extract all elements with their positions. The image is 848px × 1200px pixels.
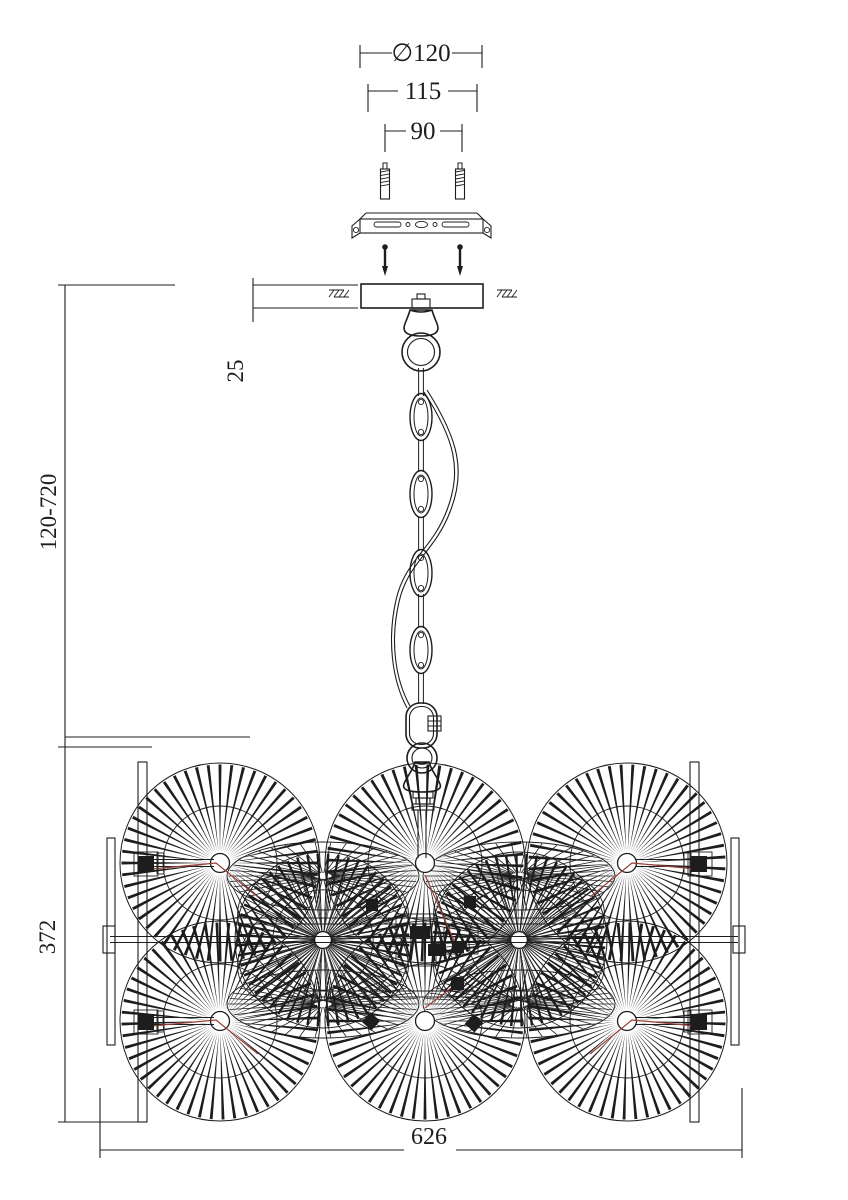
power-cord: [392, 390, 459, 708]
dim-canopy-diameter: ∅120: [360, 40, 482, 68]
crystal-disc: [325, 921, 525, 1121]
wall-hatch-right: [497, 290, 517, 297]
quick-link-sleeve: [428, 716, 441, 731]
dim-label-body-height: 372: [35, 920, 60, 955]
canopy-screw-cap: [417, 294, 425, 299]
side-disc-left-short: [107, 838, 115, 1045]
wall-anchor: [456, 163, 465, 199]
chandelier-body: [120, 163, 727, 1121]
canopy-bell: [404, 310, 438, 336]
dim-label-bracket-width: 115: [405, 78, 442, 105]
dim-label-suspension-range: 120-720: [36, 474, 61, 551]
quick-link: [406, 703, 441, 748]
canopy-nut: [412, 299, 430, 308]
dim-hole-spacing: 90: [385, 118, 462, 152]
dim-label-canopy-height: 25: [223, 360, 248, 383]
mounting-screw: [382, 244, 388, 276]
mounting-bracket: [352, 213, 491, 238]
mounting-screw: [457, 244, 463, 276]
rod-end-cap-left: [103, 926, 115, 953]
dim-body-width: 626: [100, 1088, 742, 1158]
dim-bracket-width: 115: [368, 78, 477, 112]
dim-suspension-range: 120-720: [36, 285, 250, 748]
wall-anchor: [381, 163, 390, 199]
wall-hatch-left: [329, 290, 349, 297]
dim-body-height: 372: [35, 748, 145, 1122]
suspension-chain: [410, 368, 432, 704]
side-disc-right-short: [731, 838, 739, 1045]
stem: [418, 810, 426, 858]
dim-canopy-height: 25: [223, 278, 358, 383]
technical-drawing-canvas: ∅120 115 90: [0, 0, 848, 1200]
dim-label-body-width: 626: [411, 1124, 447, 1150]
dim-label-hole-spacing: 90: [411, 118, 436, 145]
dim-label-canopy-diameter: ∅120: [391, 40, 450, 67]
ceiling-canopy: [361, 284, 483, 371]
